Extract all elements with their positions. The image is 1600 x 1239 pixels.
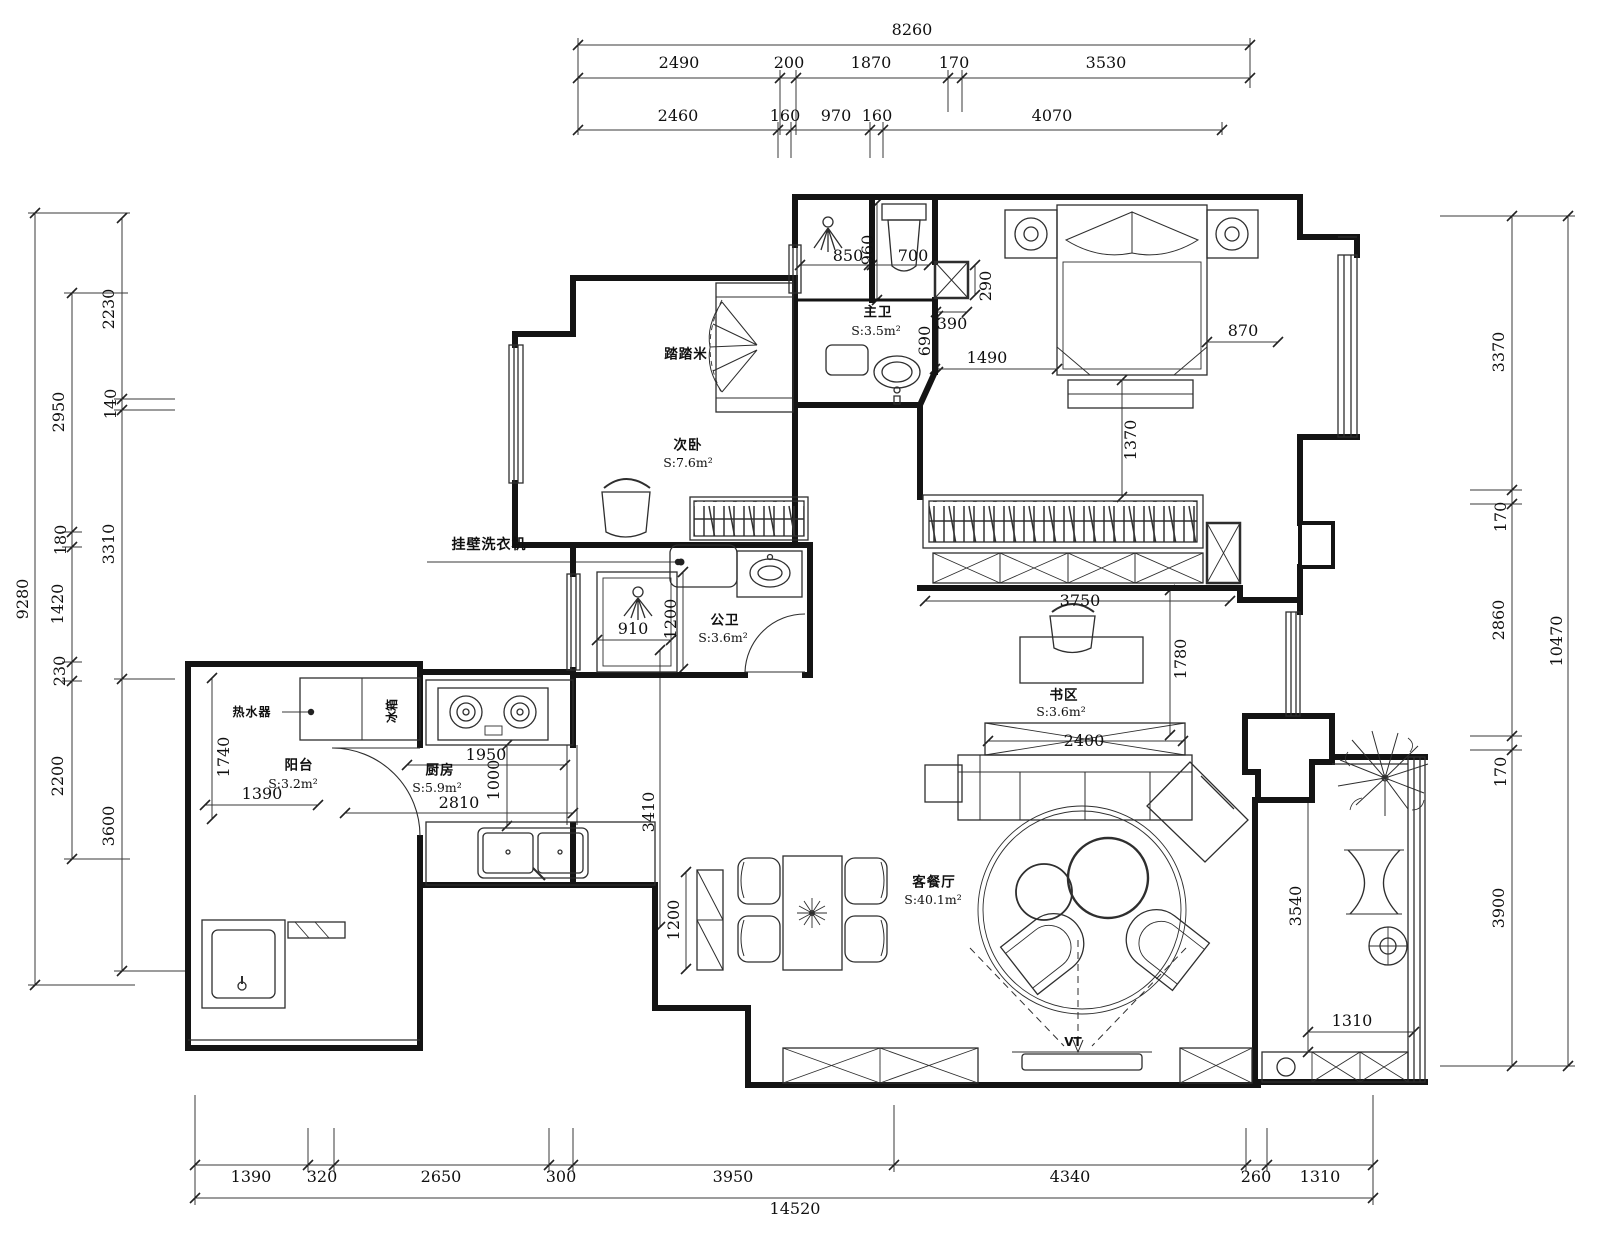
room-study: 书区 <box>1050 689 1079 703</box>
room-study-area: S:3.6m² <box>1036 706 1086 719</box>
dim-bot-3950: 3950 <box>713 1169 754 1185</box>
dim-left-180: 180 <box>53 525 69 556</box>
floor-plan-page: 8260249020018701703530246016097016040709… <box>0 0 1600 1239</box>
dim-bot-260: 260 <box>1241 1169 1272 1185</box>
dim-top-200: 200 <box>774 55 805 71</box>
dim-left-2230: 2230 <box>101 289 117 330</box>
dim-in-1000: 1000 <box>486 760 502 801</box>
dim-right-total: 10470 <box>1549 616 1565 667</box>
dim-in-690: 690 <box>917 326 933 357</box>
dim-in-1310b: 1310 <box>1332 1013 1373 1029</box>
room-second-bedroom: 次卧 <box>674 439 703 453</box>
room-living: 客餐厅 <box>912 876 956 890</box>
room-balcony: 阳台 <box>285 759 314 773</box>
dim-in-1200-cab: 1200 <box>666 900 682 941</box>
dim-bot-300: 300 <box>546 1169 577 1185</box>
dim-in-3410: 3410 <box>641 792 657 833</box>
room-balcony-area: S:3.2m² <box>268 778 318 791</box>
dim-left-total: 9280 <box>15 579 31 620</box>
label-layer: 8260249020018701703530246016097016040709… <box>0 0 1600 1239</box>
dim-in-1200-shower: 1200 <box>663 599 679 640</box>
dim-top-3530: 3530 <box>1086 55 1127 71</box>
dim-top-160b: 160 <box>862 108 893 124</box>
dim-in-960: 960 <box>860 235 876 266</box>
dim-bot-1390: 1390 <box>231 1169 272 1185</box>
note-fridge: 冰箱 <box>386 699 398 723</box>
dim-bot-total: 14520 <box>770 1201 821 1217</box>
dim-top-970: 970 <box>821 108 852 124</box>
dim-bot-2650: 2650 <box>421 1169 462 1185</box>
note-water-heater: 热水器 <box>232 706 271 718</box>
dim-top-170: 170 <box>939 55 970 71</box>
dim-in-1370: 1370 <box>1123 420 1139 461</box>
dim-left-2200: 2200 <box>50 756 66 797</box>
room-master-bath: 主卫 <box>864 306 893 320</box>
dim-right-170a: 170 <box>1493 502 1509 533</box>
dim-in-1490: 1490 <box>967 350 1008 366</box>
dim-top-2460: 2460 <box>658 108 699 124</box>
dim-in-290: 290 <box>978 271 994 302</box>
dim-right-2860: 2860 <box>1491 600 1507 641</box>
dim-in-700: 700 <box>898 248 929 264</box>
note-wall-washer: 挂壁洗衣机 <box>452 538 527 552</box>
note-tv: VT <box>1064 1036 1081 1048</box>
dim-left-3310: 3310 <box>101 524 117 565</box>
room-master-bath-area: S:3.5m² <box>851 325 901 338</box>
dim-right-170b: 170 <box>1493 757 1509 788</box>
dim-right-3900: 3900 <box>1491 888 1507 929</box>
dim-bot-4340: 4340 <box>1050 1169 1091 1185</box>
dim-in-390: 390 <box>937 316 968 332</box>
dim-bot-320: 320 <box>307 1169 338 1185</box>
dim-left-140: 140 <box>103 389 119 420</box>
dim-right-3370: 3370 <box>1491 332 1507 373</box>
dim-left-230: 230 <box>52 656 68 687</box>
room-kitchen-area: S:5.9m² <box>412 782 462 795</box>
dim-in-3540: 3540 <box>1288 886 1304 927</box>
dim-top-4070: 4070 <box>1032 108 1073 124</box>
dim-left-3600: 3600 <box>101 806 117 847</box>
dim-in-1740: 1740 <box>216 737 232 778</box>
dim-in-910: 910 <box>618 621 649 637</box>
dim-top-2490: 2490 <box>659 55 700 71</box>
dim-bot-1310: 1310 <box>1300 1169 1341 1185</box>
dim-left-2950: 2950 <box>51 392 67 433</box>
dim-in-1780: 1780 <box>1173 639 1189 680</box>
dim-in-3750: 3750 <box>1060 593 1101 609</box>
room-second-bedroom-area: S:7.6m² <box>663 457 713 470</box>
dim-left-1420: 1420 <box>50 584 66 625</box>
dim-top-160a: 160 <box>770 108 801 124</box>
dim-in-870: 870 <box>1228 323 1259 339</box>
room-public-bath: 公卫 <box>711 614 740 628</box>
room-public-bath-area: S:3.6m² <box>698 632 748 645</box>
dim-in-2400: 2400 <box>1064 733 1105 749</box>
dim-top-total: 8260 <box>892 22 933 38</box>
dim-top-1870: 1870 <box>851 55 892 71</box>
room-tatami: 踏踏米 <box>664 348 708 362</box>
dim-in-2810: 2810 <box>439 795 480 811</box>
room-living-area: S:40.1m² <box>904 894 961 907</box>
room-kitchen: 厨房 <box>426 764 455 778</box>
